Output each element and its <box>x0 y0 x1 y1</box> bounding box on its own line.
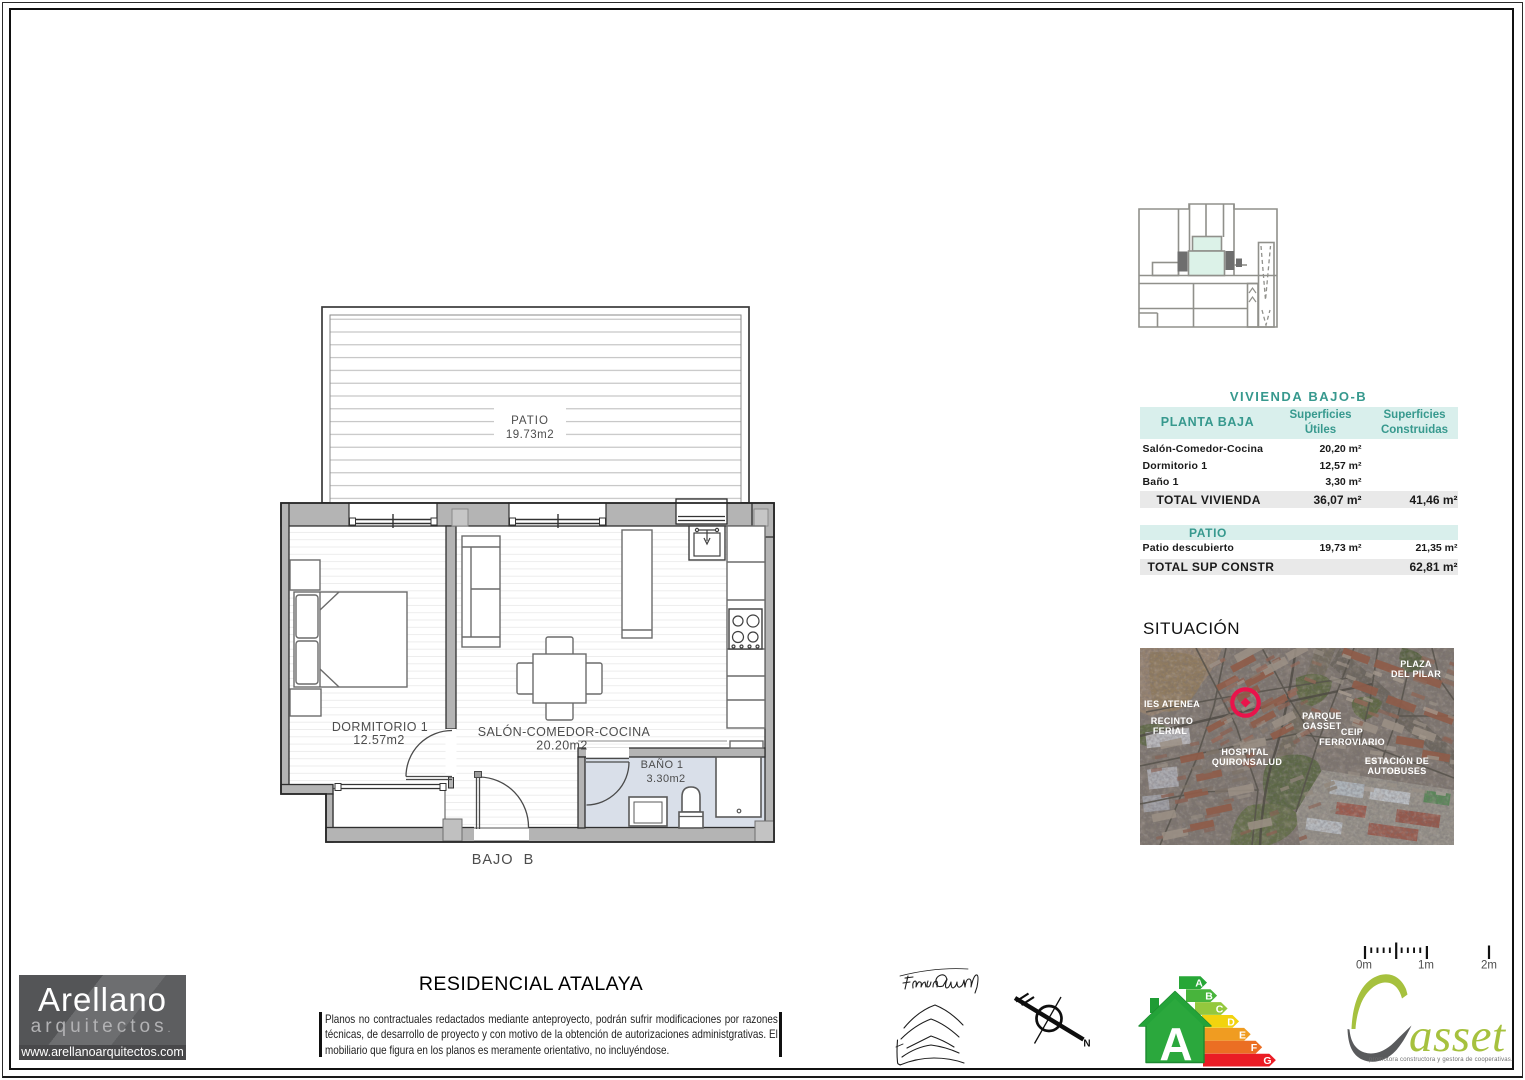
svg-text:C: C <box>1216 1004 1224 1016</box>
svg-text:N: N <box>1083 1039 1090 1050</box>
svg-text:CEIP: CEIP <box>1341 727 1363 737</box>
svg-text:2m: 2m <box>1481 960 1497 972</box>
svg-text:12.57m2: 12.57m2 <box>353 733 404 747</box>
svg-text:PATIO: PATIO <box>511 415 549 427</box>
svg-text:QUIRONSALUD: QUIRONSALUD <box>1212 757 1282 767</box>
svg-text:BAJO B: BAJO B <box>472 852 535 868</box>
svg-text:FERROVIARIO: FERROVIARIO <box>1319 737 1385 747</box>
svg-text:PLAZA: PLAZA <box>1400 659 1432 669</box>
svg-text:ESTACIÓN DE: ESTACIÓN DE <box>1365 755 1429 766</box>
svg-text:IES ATENEA: IES ATENEA <box>1144 699 1200 709</box>
svg-text:BAÑO 1: BAÑO 1 <box>641 758 684 771</box>
svg-text:G: G <box>1263 1055 1271 1067</box>
svg-text:A: A <box>1159 1018 1192 1070</box>
svg-text:DEL PILAR: DEL PILAR <box>1391 669 1441 679</box>
svg-text:3.30m2: 3.30m2 <box>646 773 685 785</box>
svg-text:PARQUE: PARQUE <box>1302 711 1342 721</box>
svg-text:E: E <box>1239 1029 1246 1041</box>
svg-text:F: F <box>1251 1042 1258 1054</box>
svg-text:GASSET: GASSET <box>1303 721 1342 731</box>
svg-text:A: A <box>1195 978 1203 990</box>
svg-text:RECINTO: RECINTO <box>1151 716 1193 726</box>
svg-text:0m: 0m <box>1356 960 1372 972</box>
svg-text:1m: 1m <box>1418 960 1434 972</box>
svg-text:B: B <box>1205 991 1213 1003</box>
svg-text:19.73m2: 19.73m2 <box>506 429 554 441</box>
svg-text:HOSPITAL: HOSPITAL <box>1221 747 1268 757</box>
svg-text:SALÓN-COMEDOR-COCINA: SALÓN-COMEDOR-COCINA <box>478 724 651 739</box>
svg-text:20.20m2: 20.20m2 <box>536 739 587 753</box>
svg-text:FERIAL: FERIAL <box>1153 726 1188 736</box>
svg-text:DORMITORIO 1: DORMITORIO 1 <box>332 720 428 734</box>
svg-text:D: D <box>1227 1016 1235 1028</box>
svg-text:AUTOBUSES: AUTOBUSES <box>1367 766 1426 776</box>
